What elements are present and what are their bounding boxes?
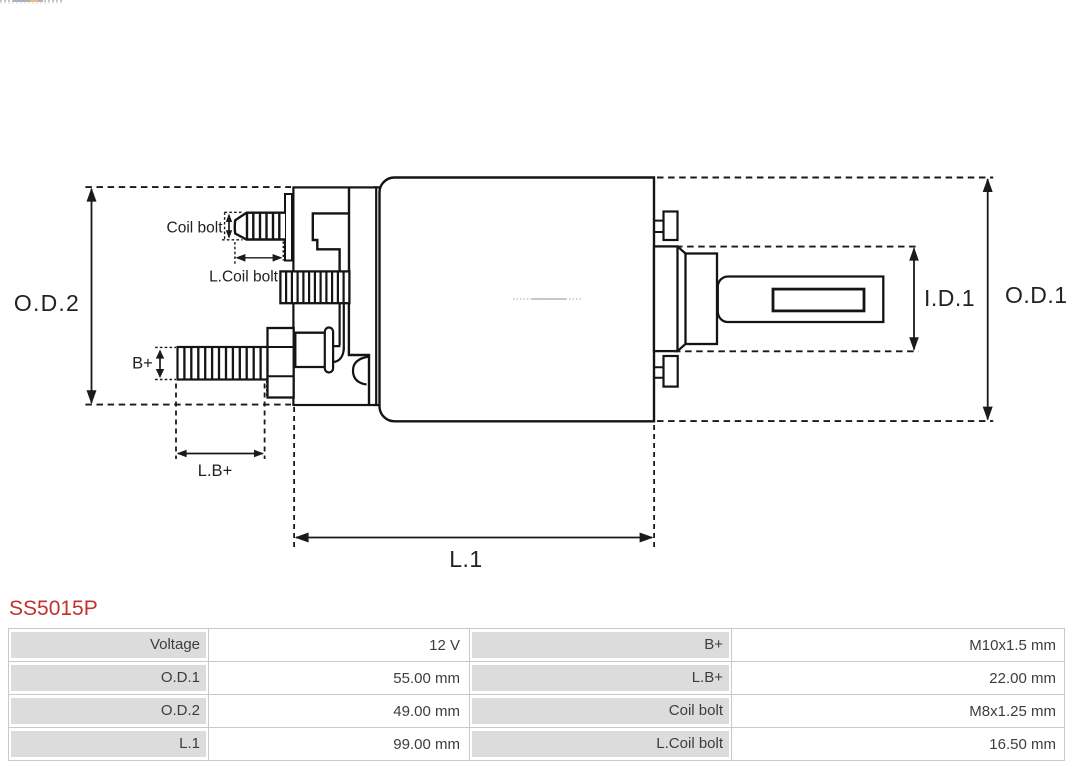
svg-text:L.Coil bolt: L.Coil bolt	[209, 269, 279, 286]
svg-text:I.D.1: I.D.1	[924, 285, 975, 311]
svg-text:L.B+: L.B+	[198, 462, 232, 480]
svg-text:Coil bolt: Coil bolt	[167, 220, 224, 237]
svg-text:B+: B+	[132, 355, 153, 373]
svg-text:L.1: L.1	[449, 546, 482, 572]
svg-text:O.D.2: O.D.2	[14, 290, 80, 316]
svg-text:O.D.1: O.D.1	[1005, 282, 1068, 308]
